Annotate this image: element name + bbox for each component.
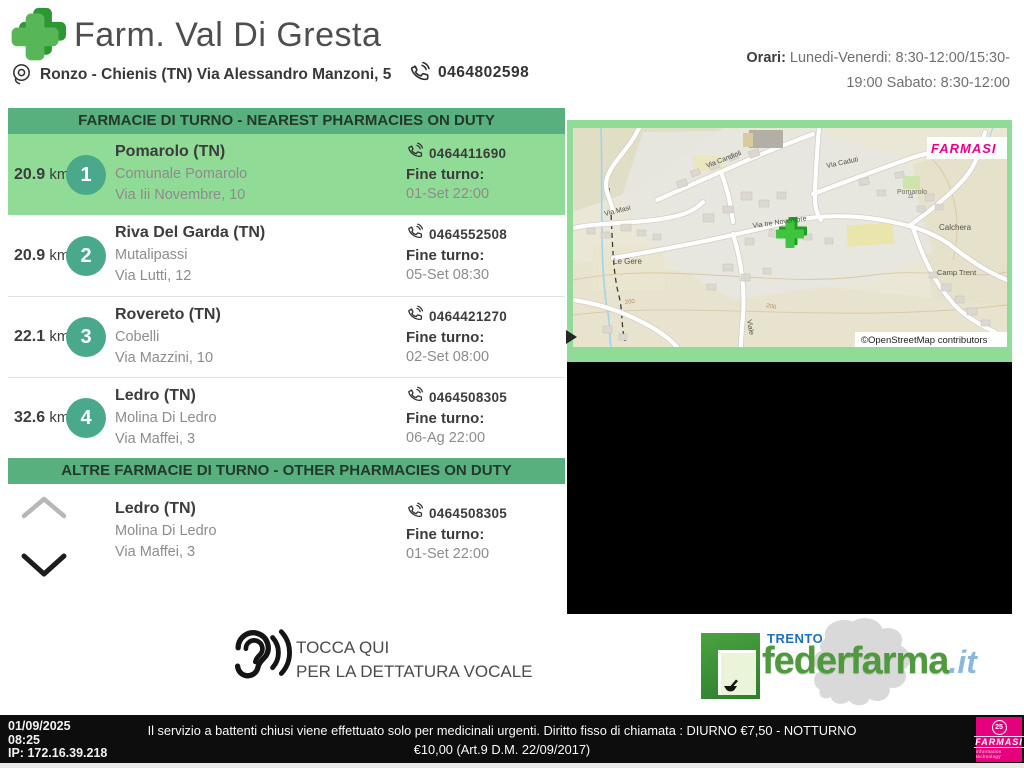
triangle-marker-icon[interactable] <box>566 330 577 344</box>
pharmacy-city: Pomarolo (TN) <box>115 143 247 161</box>
bottom-strip <box>0 763 1024 768</box>
fine-turno-value: 06-Ag 22:00 <box>406 430 564 446</box>
page-title: Farm. Val Di Gresta <box>74 16 381 55</box>
footer-bar: 01/09/2025 08:25 IP: 172.16.39.218 Il se… <box>0 715 1024 763</box>
footer-ip: IP: 172.16.39.218 <box>8 747 107 761</box>
fine-turno-label: Fine turno: <box>406 329 564 346</box>
scroll-up-button[interactable] <box>20 494 68 520</box>
mortar-pestle-icon <box>721 675 741 695</box>
blank-video-panel <box>567 362 1012 614</box>
chevron-up-icon <box>24 499 64 516</box>
farmasi-tagline: information technology <box>976 749 1022 759</box>
pharmacy-row[interactable]: 20.9 km 2 Riva Del Garda (TN) Mutalipass… <box>8 215 565 296</box>
pharmacy-street: Via Iii Novembre, 10 <box>115 185 247 206</box>
pharmacy-phone-number: 0464508305 <box>429 502 507 521</box>
pharmacy-phone: 0464802598 <box>438 64 529 82</box>
pharmacy-phone-number: 0464411690 <box>429 142 506 161</box>
distance: 20.9 km <box>14 166 69 184</box>
footer-time: 08:25 <box>8 734 107 748</box>
ear-icon <box>226 624 292 688</box>
farmasi-footer-logo: 25 FARMASI information technology <box>976 717 1022 762</box>
pharmacy-phone-number: 0464508305 <box>429 386 507 405</box>
pharmacy-row[interactable]: 20.9 km 1 Pomarolo (TN) Comunale Pomarol… <box>8 134 565 215</box>
other-section-header: ALTRE FARMACIE DI TURNO - OTHER PHARMACI… <box>8 458 565 484</box>
svg-text:⚖: ⚖ <box>908 193 914 200</box>
distance: 32.6 km <box>14 409 69 427</box>
rank-badge: 4 <box>66 398 106 438</box>
pharmacy-phone-number: 0464552508 <box>429 223 507 242</box>
pharmacy-street: Via Maffei, 3 <box>115 542 217 563</box>
map-label-calchera: Calchera <box>939 223 972 232</box>
map-label-contour: 200 <box>625 299 636 306</box>
pharmacy-name: Mutalipassi <box>115 245 265 266</box>
fine-turno-value: 05-Set 08:30 <box>406 267 564 283</box>
rank-badge: 2 <box>66 236 106 276</box>
fine-turno-label: Fine turno: <box>406 526 564 543</box>
phone-icon <box>406 142 424 160</box>
fine-turno-value: 01-Set 22:00 <box>406 546 564 562</box>
rank-badge: 1 <box>66 155 106 195</box>
pharmacy-phone-number: 0464421270 <box>429 305 507 324</box>
federfarma-emblem <box>701 633 760 699</box>
fine-turno-label: Fine turno: <box>406 410 564 427</box>
map[interactable]: Via Masi Via Candioli Via Caduti Via tre… <box>573 128 1007 347</box>
chevron-down-icon <box>24 556 64 574</box>
farmasi-watermark: FARMASI <box>931 141 997 156</box>
phone-icon <box>406 502 424 520</box>
pharmacy-name: Cobelli <box>115 327 221 348</box>
footer-system-info: 01/09/2025 08:25 IP: 172.16.39.218 <box>8 720 107 761</box>
fine-turno-label: Fine turno: <box>406 247 564 264</box>
pharmacy-city: Ledro (TN) <box>115 500 217 518</box>
location-pin-icon <box>10 62 33 86</box>
phone-icon <box>408 61 431 84</box>
fine-turno-value: 01-Set 22:00 <box>406 186 564 202</box>
federfarma-brand: federfarma.it <box>762 640 977 683</box>
farmasi-badge: 25 <box>992 720 1007 735</box>
duty-pharmacies-panel: FARMACIE DI TURNO - NEAREST PHARMACIES O… <box>8 108 565 588</box>
other-pharmacy-row[interactable]: Ledro (TN) Molina Di Ledro Via Maffei, 3… <box>8 484 565 588</box>
hours-label: Orari: <box>746 50 786 66</box>
map-label-camp-trent: Camp Trent <box>937 268 977 277</box>
pharmacy-city: Riva Del Garda (TN) <box>115 224 265 242</box>
pharmacy-street: Via Mazzini, 10 <box>115 348 221 369</box>
fine-turno-label: Fine turno: <box>406 166 564 183</box>
pharmacy-kiosk-screen: Farm. Val Di Gresta Ronzo - Chienis (TN)… <box>0 0 1024 768</box>
pharmacy-address: Ronzo - Chienis (TN) Via Alessandro Manz… <box>40 66 391 84</box>
voice-dictation-label: TOCCA QUI PER LA DETTATURA VOCALE <box>296 636 533 684</box>
phone-icon <box>406 386 424 404</box>
pharmacy-city: Ledro (TN) <box>115 387 217 405</box>
map-label-le-gere: Le Gere <box>613 257 642 266</box>
distance: 20.9 km <box>14 247 69 265</box>
pharmacy-name: Comunale Pomarolo <box>115 164 247 185</box>
pharmacy-row[interactable]: 22.1 km 3 Rovereto (TN) Cobelli Via Mazz… <box>8 296 565 377</box>
pharmacy-cross-logo <box>6 5 66 65</box>
footer-date: 01/09/2025 <box>8 720 107 734</box>
pharmacy-city: Rovereto (TN) <box>115 306 221 324</box>
distance: 22.1 km <box>14 328 69 346</box>
rank-badge: 3 <box>66 317 106 357</box>
osm-attribution: ©OpenStreetMap contributors <box>861 335 988 346</box>
phone-icon <box>406 223 424 241</box>
pharmacy-name: Molina Di Ledro <box>115 521 217 542</box>
map-frame: Via Masi Via Candioli Via Caduti Via tre… <box>567 120 1012 362</box>
footer-notice: Il servizio a battenti chiusi viene effe… <box>130 721 874 759</box>
scroll-down-button[interactable] <box>20 550 68 580</box>
duty-section-header: FARMACIE DI TURNO - NEAREST PHARMACIES O… <box>8 108 565 134</box>
pharmacy-street: Via Maffei, 3 <box>115 429 217 450</box>
pharmacy-street: Via Lutti, 12 <box>115 266 265 287</box>
pharmacy-row[interactable]: 32.6 km 4 Ledro (TN) Molina Di Ledro Via… <box>8 377 565 458</box>
phone-icon <box>406 305 424 323</box>
opening-hours: Orari:Lunedi-Venerdi: 8:30-12:00/15:30- … <box>680 46 1010 96</box>
pharmacy-name: Molina Di Ledro <box>115 408 217 429</box>
fine-turno-value: 02-Set 08:00 <box>406 349 564 365</box>
farmasi-name: FARMASI <box>974 736 1024 748</box>
